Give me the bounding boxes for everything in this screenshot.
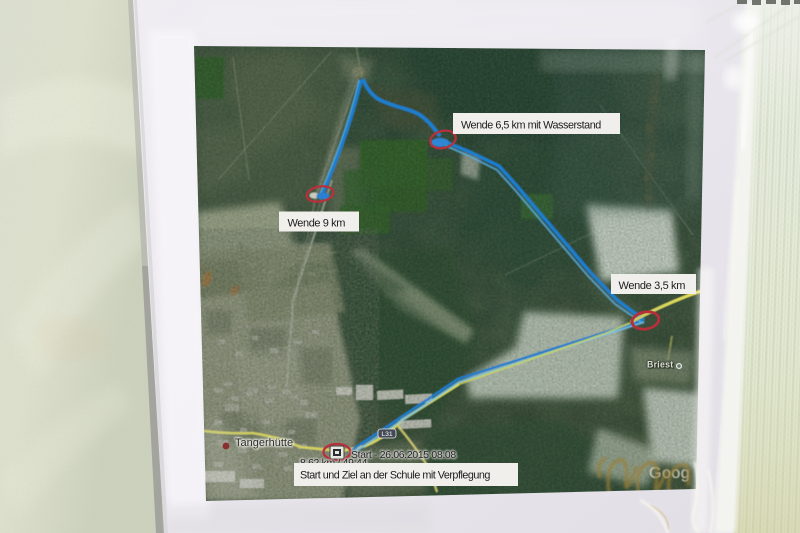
svg-text:Wende 3,5 km: Wende 3,5 km: [619, 280, 686, 292]
svg-text:Wende 9 km: Wende 9 km: [288, 218, 346, 230]
svg-text:Briest: Briest: [647, 360, 673, 370]
svg-text:L31: L31: [381, 431, 393, 438]
svg-text:Start und Ziel an der Schule m: Start und Ziel an der Schule mit Verpfle…: [300, 470, 490, 482]
svg-text:Tangerhütte: Tangerhütte: [235, 437, 293, 449]
svg-text:Wende 6,5 km mit Wasserstand: Wende 6,5 km mit Wasserstand: [461, 120, 601, 132]
